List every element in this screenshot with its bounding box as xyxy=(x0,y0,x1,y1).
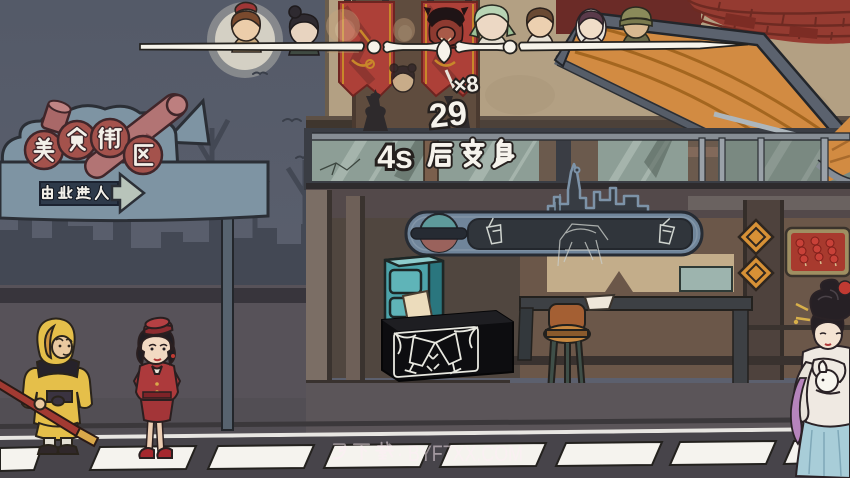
svg-text:4s: 4s xyxy=(377,139,413,175)
svg-text:×8: ×8 xyxy=(452,71,479,98)
svg-text:29: 29 xyxy=(427,94,469,136)
svg-text:· BYF7XX.COM: · BYF7XX.COM xyxy=(397,441,523,466)
